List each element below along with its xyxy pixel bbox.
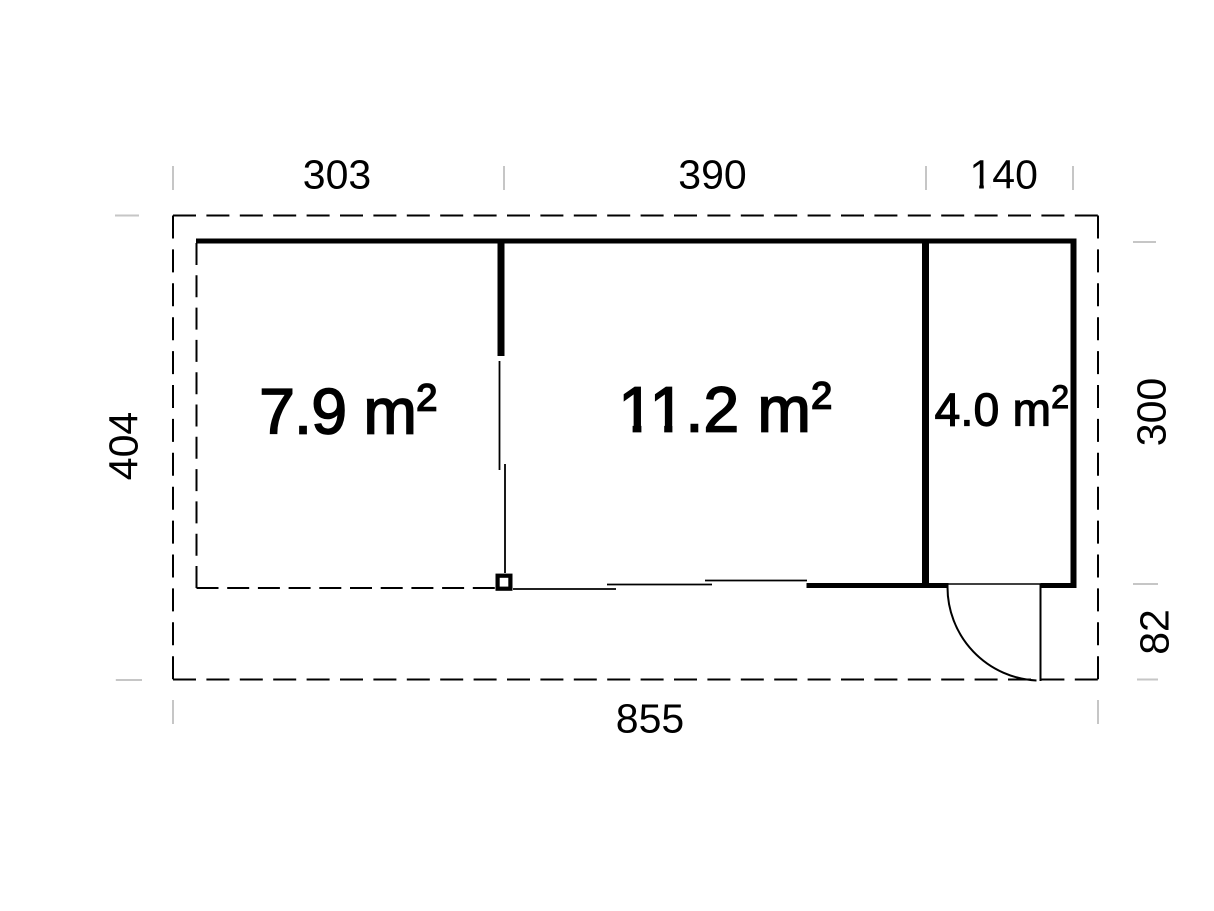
svg-text:855: 855	[616, 696, 684, 742]
svg-text:404: 404	[101, 412, 147, 480]
svg-text:7.9 m2: 7.9 m2	[259, 376, 437, 448]
svg-text:303: 303	[303, 152, 371, 198]
svg-text:82: 82	[1132, 609, 1178, 655]
svg-text:390: 390	[678, 152, 746, 198]
svg-text:300: 300	[1129, 378, 1175, 446]
svg-text:140: 140	[969, 152, 1037, 198]
svg-text:11.2 m2: 11.2 m2	[618, 374, 832, 446]
svg-text:4.0 m2: 4.0 m2	[935, 379, 1070, 436]
